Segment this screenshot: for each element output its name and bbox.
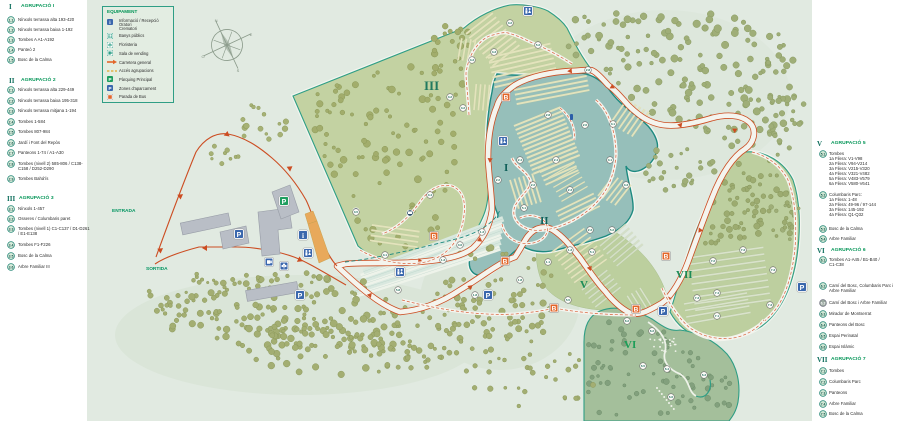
svg-text:2.3: 2.3 bbox=[9, 109, 14, 113]
svg-text:I: I bbox=[504, 162, 508, 174]
svg-text:5.8: 5.8 bbox=[396, 288, 401, 292]
svg-text:III: III bbox=[424, 78, 439, 93]
svg-text:3.3: 3.3 bbox=[492, 50, 497, 54]
svg-text:5.3: 5.3 bbox=[821, 227, 826, 231]
svg-text:7.2: 7.2 bbox=[821, 380, 826, 384]
svg-text:2.3: 2.3 bbox=[588, 228, 593, 232]
svg-text:N: N bbox=[215, 18, 218, 23]
svg-text:1.5: 1.5 bbox=[9, 58, 14, 62]
svg-text:1.3: 1.3 bbox=[9, 38, 14, 42]
svg-text:7.3: 7.3 bbox=[821, 391, 826, 395]
svg-text:1.4: 1.4 bbox=[9, 48, 14, 52]
svg-text:5.2: 5.2 bbox=[821, 193, 826, 197]
svg-text:3.5: 3.5 bbox=[9, 254, 14, 258]
svg-text:2.2: 2.2 bbox=[531, 183, 536, 187]
svg-text:7.3: 7.3 bbox=[741, 248, 746, 252]
svg-text:2.2: 2.2 bbox=[496, 178, 501, 182]
svg-text:1.3: 1.3 bbox=[568, 248, 573, 252]
svg-text:i: i bbox=[302, 232, 304, 240]
svg-text:2.6: 2.6 bbox=[583, 123, 588, 127]
svg-text:2.1: 2.1 bbox=[9, 88, 14, 92]
svg-text:2.2: 2.2 bbox=[9, 99, 14, 103]
svg-text:7.4: 7.4 bbox=[821, 402, 826, 406]
svg-text:6.2: 6.2 bbox=[821, 284, 826, 288]
svg-text:3.2: 3.2 bbox=[448, 95, 453, 99]
svg-text:P: P bbox=[108, 86, 111, 91]
svg-text:3.3: 3.3 bbox=[470, 58, 475, 62]
svg-text:2.6: 2.6 bbox=[9, 141, 14, 145]
svg-text:6.2: 6.2 bbox=[821, 301, 826, 305]
svg-text:5.4: 5.4 bbox=[821, 237, 826, 241]
svg-text:5.5: 5.5 bbox=[566, 298, 571, 302]
svg-text:3.1: 3.1 bbox=[611, 122, 616, 126]
svg-text:3.2: 3.2 bbox=[461, 106, 466, 110]
svg-text:5.1: 5.1 bbox=[821, 152, 826, 156]
svg-text:S: S bbox=[237, 68, 240, 73]
svg-text:2.4: 2.4 bbox=[518, 158, 523, 162]
svg-text:3.4: 3.4 bbox=[428, 193, 433, 197]
svg-text:7.1: 7.1 bbox=[715, 314, 720, 318]
svg-text:6.5: 6.5 bbox=[821, 334, 826, 338]
svg-text:3.6: 3.6 bbox=[458, 243, 463, 247]
svg-text:2.7: 2.7 bbox=[9, 151, 14, 155]
svg-text:2.4: 2.4 bbox=[554, 158, 559, 162]
svg-text:3.2: 3.2 bbox=[508, 21, 513, 25]
svg-text:2.8: 2.8 bbox=[546, 113, 551, 117]
svg-text:2.4: 2.4 bbox=[9, 120, 14, 124]
svg-text:6.2: 6.2 bbox=[625, 319, 630, 323]
svg-text:B: B bbox=[503, 259, 508, 266]
svg-text:3.5: 3.5 bbox=[354, 210, 359, 214]
svg-text:3.1: 3.1 bbox=[9, 207, 14, 211]
svg-text:7.3: 7.3 bbox=[695, 296, 700, 300]
svg-text:1.8: 1.8 bbox=[518, 278, 523, 282]
svg-text:P: P bbox=[661, 309, 666, 316]
svg-text:3.2: 3.2 bbox=[9, 217, 14, 221]
svg-text:5.1: 5.1 bbox=[590, 250, 595, 254]
svg-text:B: B bbox=[552, 306, 557, 313]
svg-text:7.1: 7.1 bbox=[821, 369, 826, 373]
svg-text:5.1: 5.1 bbox=[522, 206, 527, 210]
svg-text:P: P bbox=[108, 77, 111, 82]
svg-text:B: B bbox=[504, 95, 509, 102]
svg-text:B: B bbox=[664, 254, 669, 261]
svg-text:6.6: 6.6 bbox=[669, 395, 674, 399]
svg-text:3.1: 3.1 bbox=[383, 253, 388, 257]
svg-text:1.1: 1.1 bbox=[546, 260, 551, 264]
svg-text:O: O bbox=[201, 54, 204, 59]
svg-text:B: B bbox=[634, 307, 639, 314]
svg-text:6.6: 6.6 bbox=[821, 345, 826, 349]
svg-text:2.8: 2.8 bbox=[586, 68, 591, 72]
svg-text:1.8: 1.8 bbox=[473, 293, 478, 297]
svg-text:P: P bbox=[486, 293, 491, 300]
svg-text:V: V bbox=[580, 279, 588, 291]
svg-text:2.9: 2.9 bbox=[9, 177, 14, 181]
svg-text:E: E bbox=[250, 32, 253, 37]
svg-text:B: B bbox=[432, 234, 437, 241]
svg-text:3.6: 3.6 bbox=[9, 265, 14, 269]
svg-text:6.4: 6.4 bbox=[665, 367, 670, 371]
svg-text:1.2: 1.2 bbox=[9, 28, 14, 32]
svg-text:1.1: 1.1 bbox=[9, 18, 14, 22]
svg-text:P: P bbox=[800, 285, 805, 292]
svg-text:2.3: 2.3 bbox=[568, 188, 573, 192]
svg-text:VI: VI bbox=[624, 339, 636, 351]
svg-text:7.2: 7.2 bbox=[711, 259, 716, 263]
svg-text:6.1: 6.1 bbox=[821, 258, 826, 262]
svg-text:P: P bbox=[237, 232, 242, 239]
svg-text:ENTRADA: ENTRADA bbox=[112, 208, 136, 214]
svg-text:3.4: 3.4 bbox=[9, 243, 14, 247]
svg-text:P: P bbox=[298, 293, 303, 300]
svg-text:6.3: 6.3 bbox=[821, 312, 826, 316]
svg-text:6.4: 6.4 bbox=[821, 323, 826, 327]
svg-text:6.2: 6.2 bbox=[650, 329, 655, 333]
svg-text:7.4: 7.4 bbox=[715, 291, 720, 295]
svg-text:5.2: 5.2 bbox=[610, 228, 615, 232]
svg-text:7.5: 7.5 bbox=[821, 412, 826, 416]
svg-text:SORTIDA: SORTIDA bbox=[146, 266, 168, 272]
svg-text:7.3: 7.3 bbox=[771, 268, 776, 272]
svg-text:7.3: 7.3 bbox=[768, 303, 773, 307]
svg-text:II: II bbox=[540, 215, 549, 227]
svg-text:3.3: 3.3 bbox=[9, 227, 14, 231]
svg-text:1.3: 1.3 bbox=[480, 230, 485, 234]
svg-text:1.3: 1.3 bbox=[441, 258, 446, 262]
svg-text:2.5: 2.5 bbox=[9, 130, 14, 134]
svg-text:P: P bbox=[282, 199, 287, 206]
svg-text:3.1: 3.1 bbox=[608, 158, 613, 162]
svg-text:3.3: 3.3 bbox=[624, 183, 629, 187]
svg-text:VII: VII bbox=[676, 269, 693, 281]
svg-text:6.5: 6.5 bbox=[641, 364, 646, 368]
svg-text:6.3: 6.3 bbox=[702, 373, 707, 377]
svg-text:2.8: 2.8 bbox=[9, 162, 14, 166]
svg-text:5.2: 5.2 bbox=[536, 43, 541, 47]
